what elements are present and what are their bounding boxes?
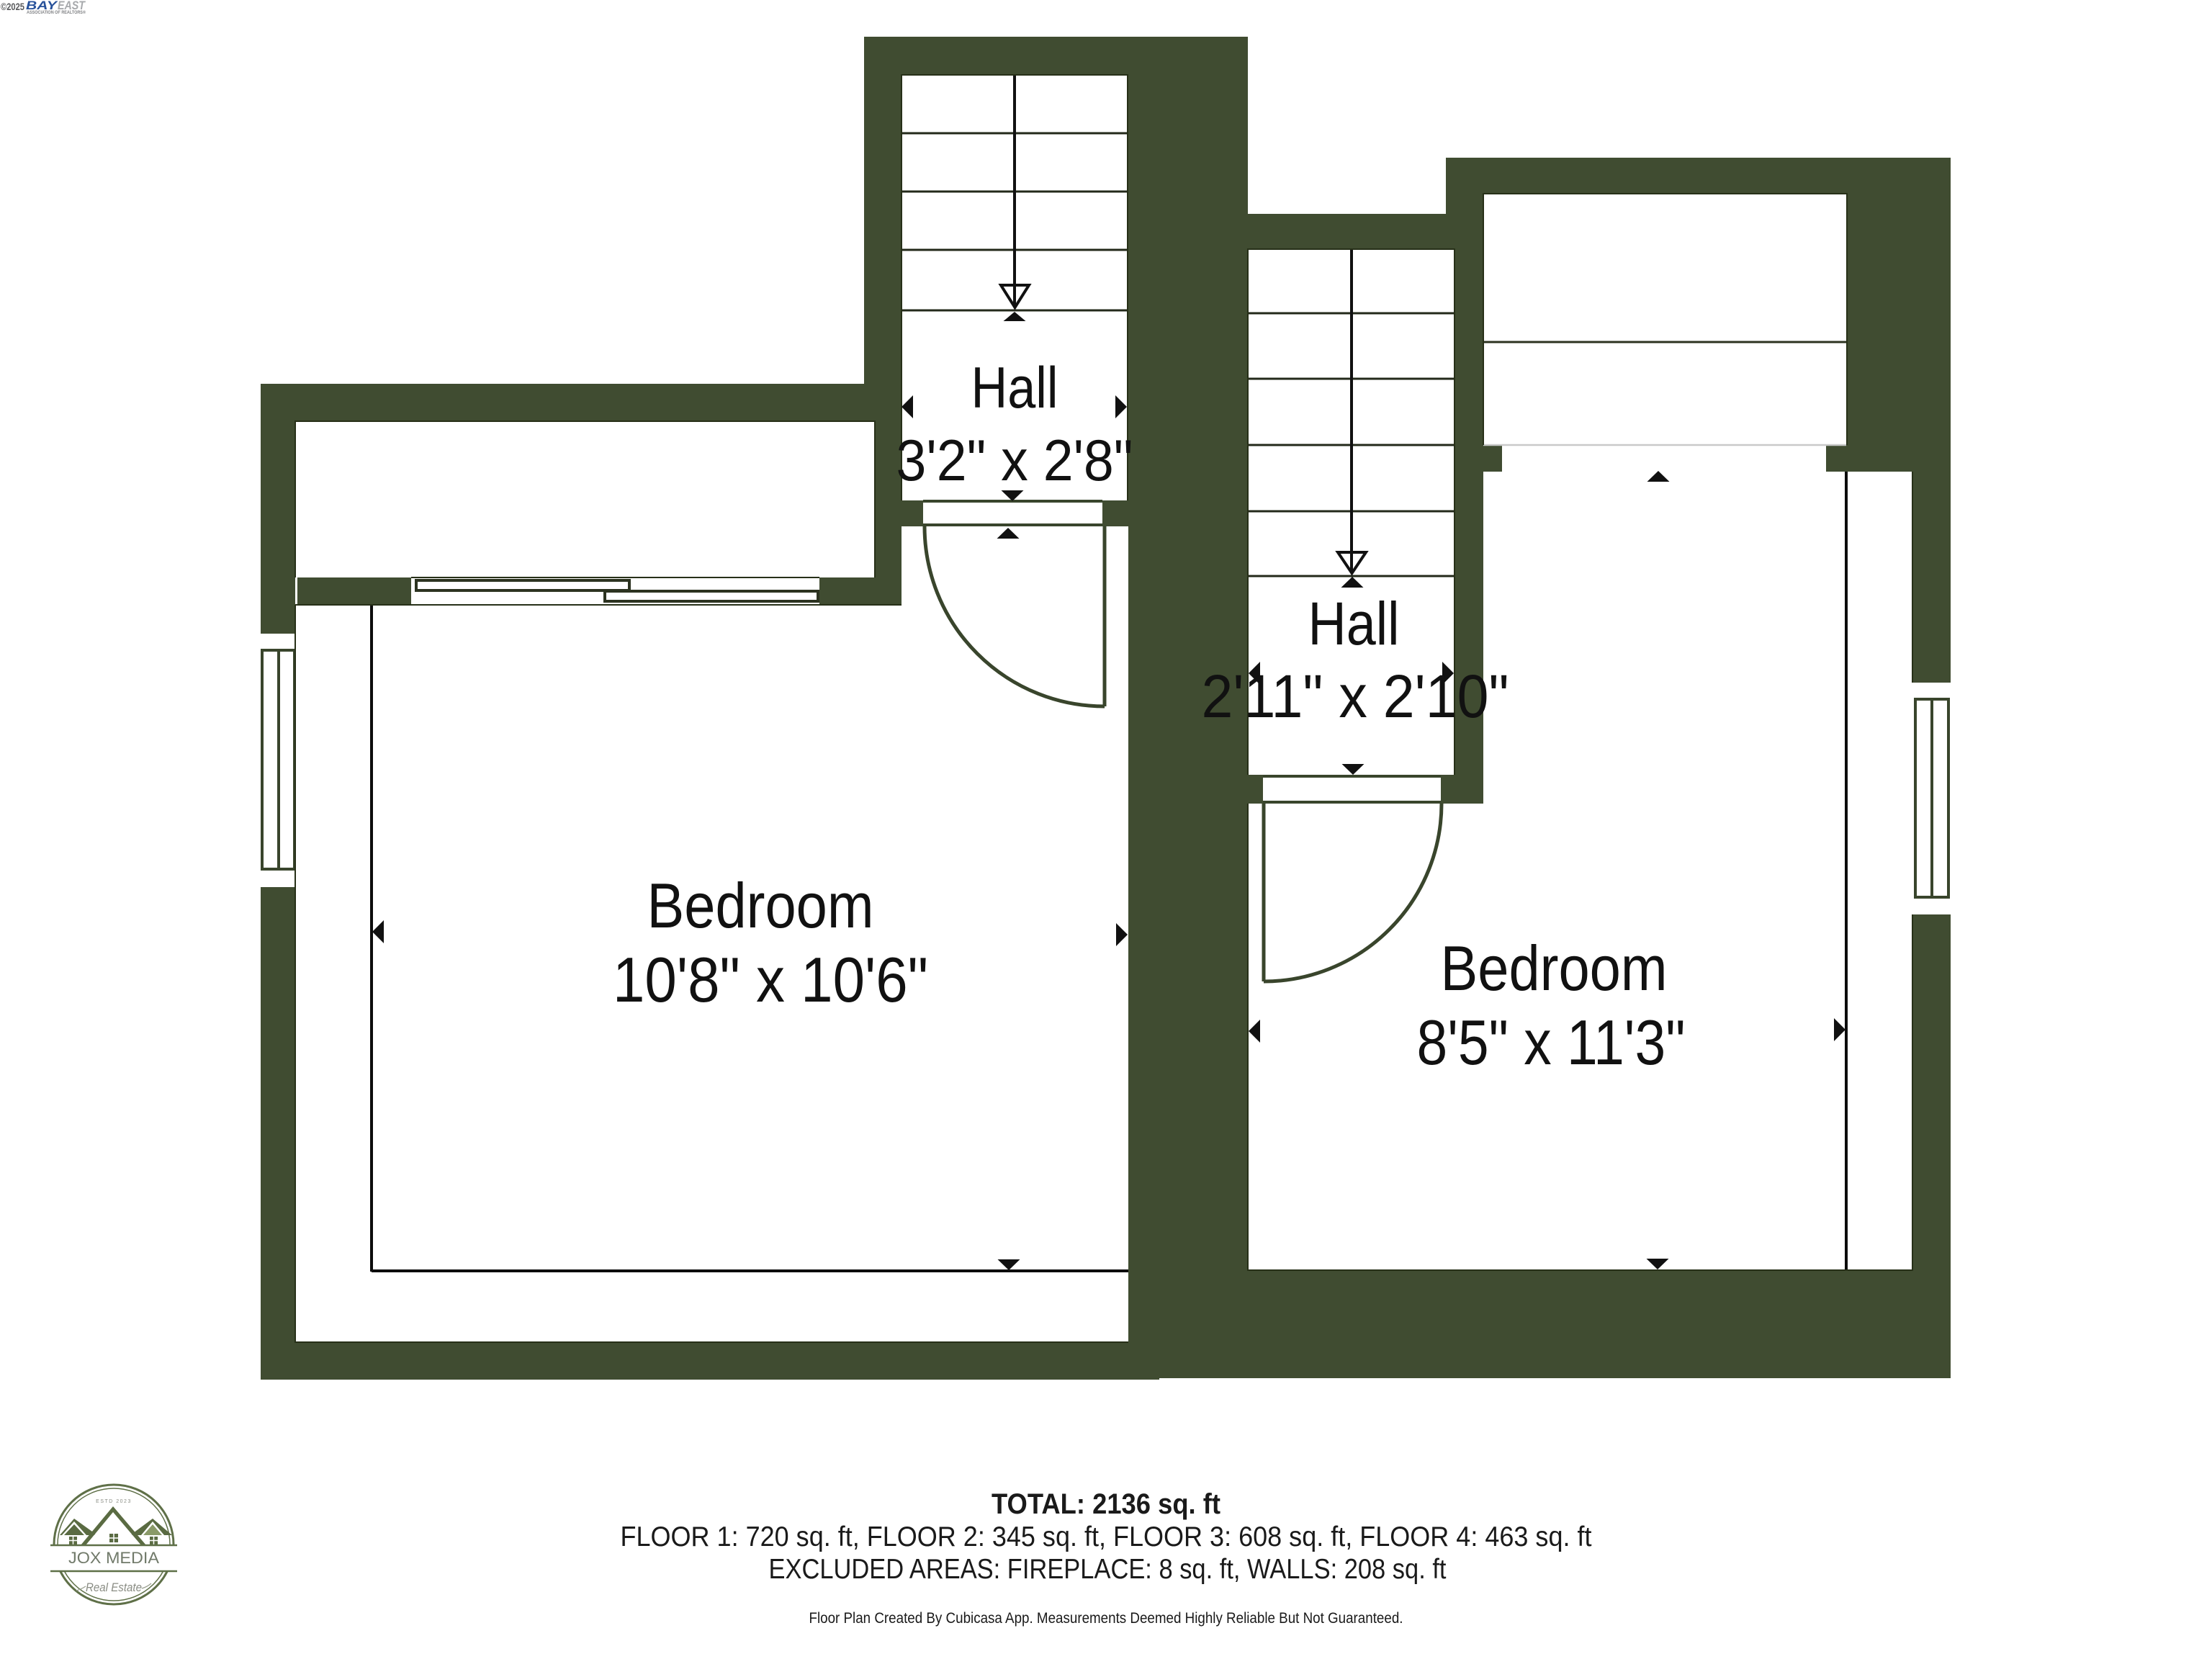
svg-text:3'2" x 2'8": 3'2" x 2'8" (896, 428, 1133, 493)
svg-text:2'11" x 2'10": 2'11" x 2'10" (1202, 662, 1509, 730)
svg-text:Real Estate: Real Estate (86, 1581, 142, 1594)
svg-text:Hall: Hall (1308, 590, 1400, 657)
svg-text:Floor Plan Created By Cubicasa: Floor Plan Created By Cubicasa App. Meas… (809, 1610, 1403, 1627)
svg-text:TOTAL: 2136 sq. ft: TOTAL: 2136 sq. ft (992, 1488, 1220, 1520)
svg-text:Bedroom: Bedroom (647, 870, 874, 941)
svg-text:ESTD 2023: ESTD 2023 (96, 1499, 132, 1504)
svg-text:10'8" x 10'6": 10'8" x 10'6" (613, 944, 928, 1015)
svg-text:Hall: Hall (971, 356, 1058, 421)
svg-text:Bedroom: Bedroom (1441, 932, 1668, 1004)
svg-text:EXCLUDED AREAS: FIREPLACE: 8 s: EXCLUDED AREAS: FIREPLACE: 8 sq. ft, WAL… (769, 1554, 1447, 1585)
svg-text:FLOOR 1: 720 sq. ft, FLOOR 2:: FLOOR 1: 720 sq. ft, FLOOR 2: 345 sq. ft… (621, 1521, 1592, 1552)
svg-text:ASSOCIATION OF REALTORS®: ASSOCIATION OF REALTORS® (27, 10, 86, 15)
svg-text:©2025: ©2025 (1, 1, 24, 12)
svg-text:8'5" x 11'3": 8'5" x 11'3" (1417, 1007, 1686, 1078)
svg-text:JOX MEDIA: JOX MEDIA (68, 1549, 159, 1567)
